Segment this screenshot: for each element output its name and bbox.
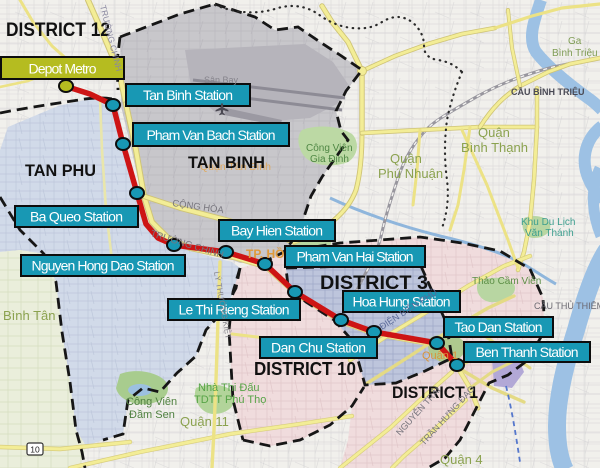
svg-text:Gia Định: Gia Định [310,154,349,165]
svg-text:Bình Tân: Bình Tân [3,308,56,323]
svg-text:Quận 4: Quận 4 [440,452,483,467]
svg-text:DISTRICT 12: DISTRICT 12 [6,20,110,41]
svg-text:Depot Metro: Depot Metro [29,61,97,77]
svg-text:TAN BINH: TAN BINH [188,153,265,172]
svg-text:Nhà Thi Đấu: Nhà Thi Đấu [198,382,260,394]
svg-text:Dan Chu Station: Dan Chu Station [271,340,366,356]
svg-text:Ben Thanh Station: Ben Thanh Station [476,344,579,360]
svg-text:Pham Van Bach Station: Pham Van Bach Station [147,127,276,143]
svg-text:Văn Thánh: Văn Thánh [525,228,574,239]
svg-text:Công Viên: Công Viên [126,396,177,408]
svg-text:Phú Nhuận: Phú Nhuận [378,166,443,181]
svg-text:TP. HỒ: TP. HỒ [246,246,284,261]
svg-text:Khu Du Lịch: Khu Du Lịch [521,217,575,228]
svg-text:Thảo Cầm Viên: Thảo Cầm Viên [472,275,541,287]
svg-text:Quận 11: Quận 11 [180,414,229,429]
svg-text:Bình Thạnh: Bình Thạnh [461,140,528,155]
svg-text:Quận 1: Quận 1 [422,350,458,362]
svg-text:TDTT Phú Thọ: TDTT Phú Thọ [194,394,266,406]
svg-text:Le Thi Rieng Station: Le Thi Rieng Station [179,302,290,318]
svg-text:Bay Hien Station: Bay Hien Station [231,223,323,239]
svg-text:CẦU BÌNH TRIỆU: CẦU BÌNH TRIỆU [511,86,585,97]
svg-text:Ba Queo Station: Ba Queo Station [30,209,123,225]
svg-text:CẦU THỦ THIÊM: CẦU THỦ THIÊM [534,300,600,311]
svg-text:Công Viên: Công Viên [306,143,353,154]
svg-text:DISTRICT 10: DISTRICT 10 [254,359,356,379]
svg-text:Bình Triệu: Bình Triệu [552,48,598,59]
svg-text:Tao Dan Station: Tao Dan Station [455,319,543,335]
svg-text:Đầm Sen: Đầm Sen [129,409,175,421]
svg-text:Tan Binh Station: Tan Binh Station [143,87,233,103]
svg-text:Nguyen Hong Dao Station: Nguyen Hong Dao Station [32,258,175,274]
svg-text:Sân Bay: Sân Bay [204,75,239,85]
svg-text:DISTRICT 3: DISTRICT 3 [320,273,428,294]
svg-text:Quận: Quận [390,151,422,166]
svg-text:Quận: Quận [478,125,510,140]
svg-text:Ga: Ga [568,36,582,47]
svg-text:TAN PHU: TAN PHU [25,161,96,180]
svg-text:Pham Van Hai Station: Pham Van Hai Station [297,249,414,265]
svg-text:10: 10 [30,445,40,455]
